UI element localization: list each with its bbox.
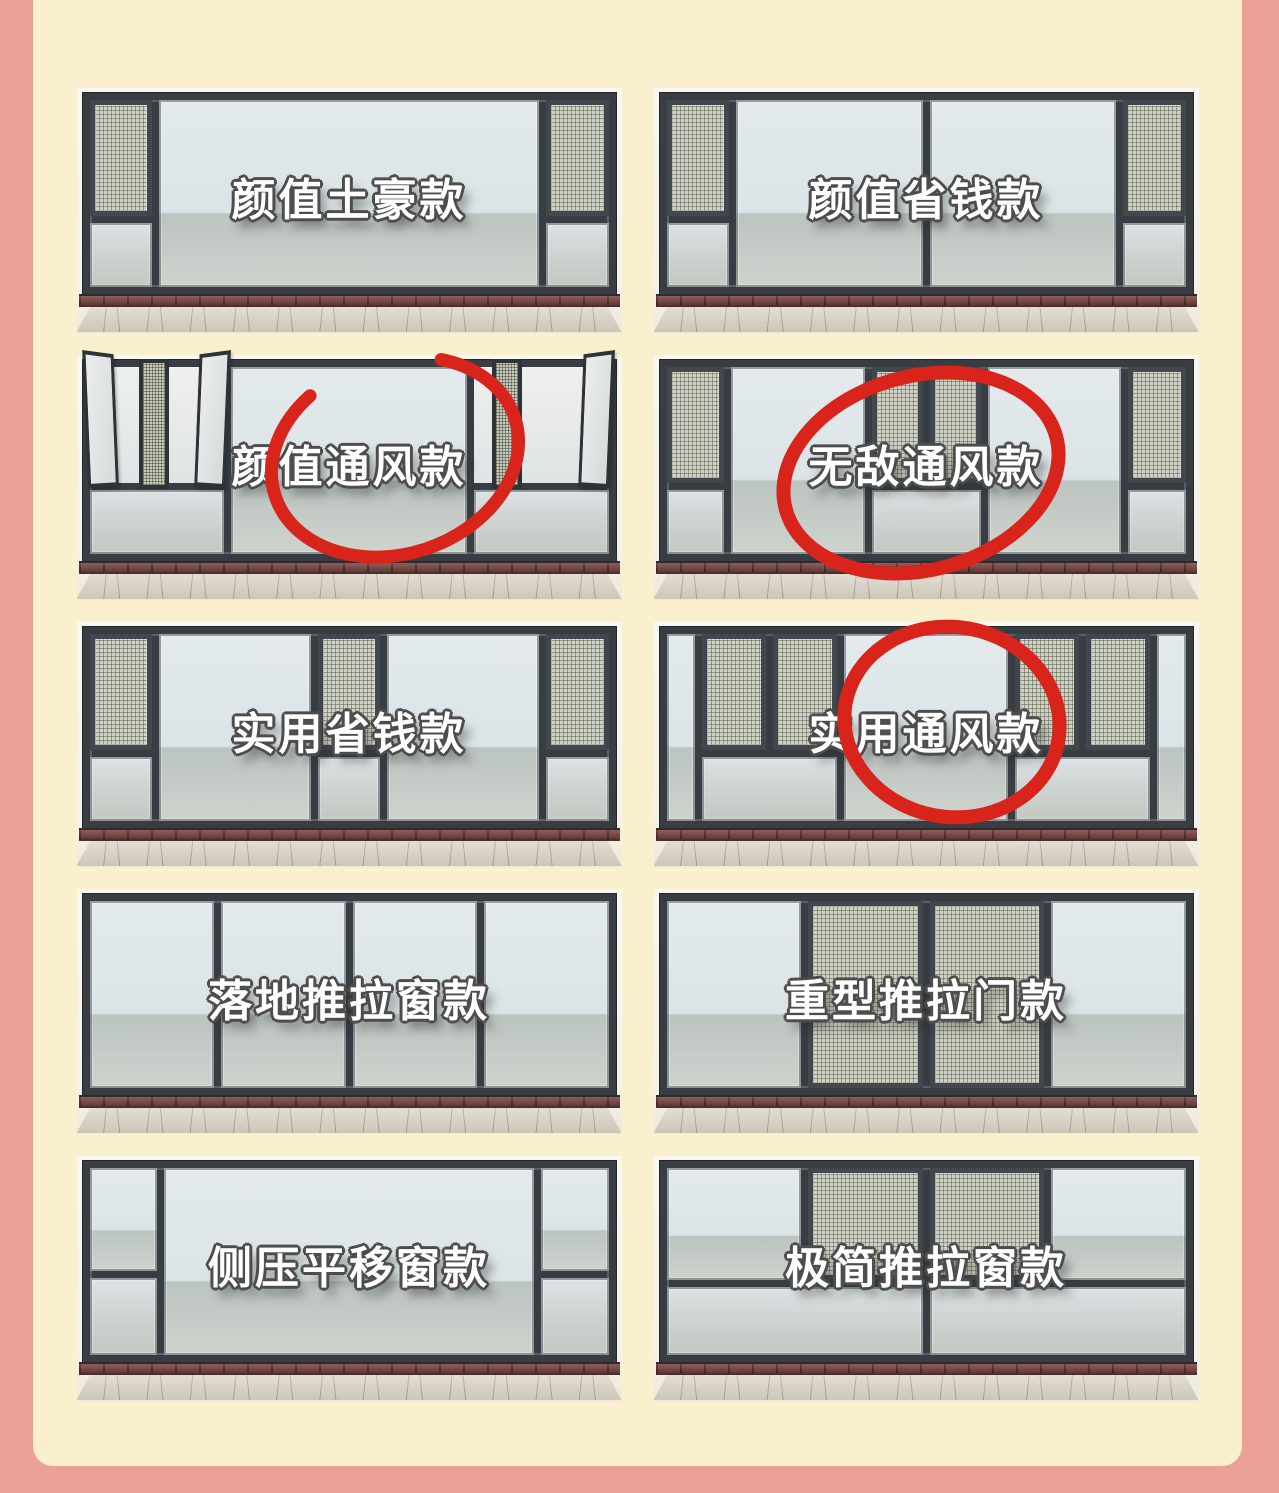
window-illustration: 实用省钱款: [77, 622, 622, 867]
tiled-floor: [654, 1108, 1199, 1133]
side-column: [1123, 100, 1185, 287]
tiled-floor: [654, 841, 1199, 866]
ground: [77, 294, 622, 332]
glass-pane: [1015, 757, 1150, 821]
open-sash: [82, 350, 119, 488]
style-label: 颜值省钱款: [809, 164, 1044, 228]
window-illustration: 颜值土豪款: [77, 88, 622, 333]
window-illustration: 重型推拉门款: [654, 889, 1199, 1134]
mesh-screen-pane: [90, 634, 152, 750]
mesh-screen-pane: [667, 100, 729, 216]
side-column: [546, 634, 608, 821]
window-style-card: 无敌通风款: [654, 355, 1199, 600]
glass-pane: [546, 757, 608, 821]
glass-pane: [667, 490, 724, 554]
tiled-floor: [654, 1375, 1199, 1400]
style-label: 实用省钱款: [232, 698, 467, 762]
glass-pane: [872, 490, 981, 554]
brick-sill: [656, 828, 1197, 841]
mesh-screen-pane: [546, 634, 608, 750]
glass-pane: [541, 1278, 608, 1355]
tiled-floor: [654, 307, 1199, 332]
mesh-screen-pane: [546, 100, 608, 216]
glass-pane: [90, 223, 152, 287]
glass-pane: [546, 223, 608, 287]
mesh-screen-pane: [1086, 634, 1150, 750]
ground: [654, 294, 1199, 332]
style-label: 重型推拉门款: [785, 965, 1067, 1029]
style-label: 侧压平移窗款: [208, 1232, 490, 1296]
mesh-screen-pane: [1128, 367, 1185, 483]
open-sash: [195, 350, 232, 488]
window-style-card: 颜值省钱款: [654, 88, 1199, 333]
ground: [77, 828, 622, 866]
glass-pane: [484, 901, 609, 1088]
mesh-screen-pane: [667, 367, 724, 483]
window-style-card: 落地推拉窗款: [77, 889, 622, 1134]
window-style-card: 实用通风款: [654, 622, 1199, 867]
brick-sill: [79, 561, 620, 574]
window-illustration: 侧压平移窗款: [77, 1156, 622, 1401]
mesh-screen-pane: [90, 100, 152, 216]
brick-sill: [656, 1095, 1197, 1108]
style-label: 极简推拉窗款: [785, 1232, 1067, 1296]
glass-pane: [1128, 490, 1185, 554]
tiled-floor: [77, 1108, 622, 1133]
side-column: [90, 634, 152, 821]
side-column: [1128, 367, 1185, 554]
mesh-screen-pane: [492, 359, 522, 489]
ground: [77, 1362, 622, 1400]
glass-pane: [667, 901, 802, 1088]
glass-pane: [667, 223, 729, 287]
window-illustration: 落地推拉窗款: [77, 889, 622, 1134]
glass-pane: [541, 1168, 608, 1271]
mesh-screen-pane: [139, 359, 169, 489]
tiled-floor: [77, 574, 622, 599]
side-column: [546, 100, 608, 287]
style-label: 颜值通风款: [232, 431, 467, 495]
ground: [654, 561, 1199, 599]
side-column: [667, 367, 724, 554]
glass-pane: [667, 1168, 802, 1280]
mesh-screen-pane: [702, 634, 766, 750]
glass-pane: [1123, 223, 1185, 287]
tiled-floor: [77, 841, 622, 866]
glass-pane: [90, 490, 225, 554]
brick-sill: [79, 1095, 620, 1108]
glass-pane: [1157, 634, 1186, 821]
side-column: [541, 1168, 608, 1355]
window-illustration: 颜值省钱款: [654, 88, 1199, 333]
window-illustration: 实用通风款: [654, 622, 1199, 867]
glass-pane: [90, 1278, 157, 1355]
glass-pane: [90, 1168, 157, 1271]
side-column: [90, 367, 225, 554]
brick-sill: [656, 561, 1197, 574]
ground: [654, 1095, 1199, 1133]
lower-row: [667, 1287, 1186, 1355]
style-label: 颜值土豪款: [232, 164, 467, 228]
style-label: 落地推拉窗款: [208, 965, 490, 1029]
glass-pane: [1051, 901, 1186, 1088]
tiled-floor: [77, 1375, 622, 1400]
ground: [654, 828, 1199, 866]
glass-pane: [667, 1287, 923, 1355]
side-column: [90, 1168, 157, 1355]
glass-pane: [90, 901, 215, 1088]
glass-pane: [1051, 1168, 1186, 1280]
window-style-card: 重型推拉门款: [654, 889, 1199, 1134]
window-illustration: 极简推拉窗款: [654, 1156, 1199, 1401]
window-style-card: 极简推拉窗款: [654, 1156, 1199, 1401]
ground: [77, 561, 622, 599]
ground: [77, 1095, 622, 1133]
open-sash: [579, 350, 616, 488]
window-style-card: 侧压平移窗款: [77, 1156, 622, 1401]
brick-sill: [656, 294, 1197, 307]
mesh-screen-pane: [1123, 100, 1185, 216]
glass-pane: [667, 634, 696, 821]
window-style-card: 实用省钱款: [77, 622, 622, 867]
open-casement-zone: [90, 367, 225, 483]
window-illustration: 无敌通风款: [654, 355, 1199, 600]
window-style-card: 颜值土豪款: [77, 88, 622, 333]
tiled-floor: [654, 574, 1199, 599]
side-column: [90, 100, 152, 287]
brick-sill: [79, 1362, 620, 1375]
brick-sill: [79, 828, 620, 841]
window-style-card: 颜值通风款: [77, 355, 622, 600]
cream-board: 颜值土豪款: [33, 0, 1242, 1466]
window-illustration: 颜值通风款: [77, 355, 622, 600]
side-column: [474, 367, 609, 554]
ground: [654, 1362, 1199, 1400]
side-column: [667, 100, 729, 287]
style-label: 无敌通风款: [809, 431, 1044, 495]
brick-sill: [79, 294, 620, 307]
glass-pane: [90, 757, 152, 821]
glass-pane: [702, 757, 837, 821]
open-casement-zone: [474, 367, 609, 483]
glass-pane: [474, 490, 609, 554]
glass-pane: [930, 1287, 1186, 1355]
tiled-floor: [77, 307, 622, 332]
panel-grid: 颜值土豪款: [33, 0, 1242, 1401]
glass-pane: [318, 757, 380, 821]
brick-sill: [656, 1362, 1197, 1375]
style-label: 实用通风款: [809, 698, 1044, 762]
